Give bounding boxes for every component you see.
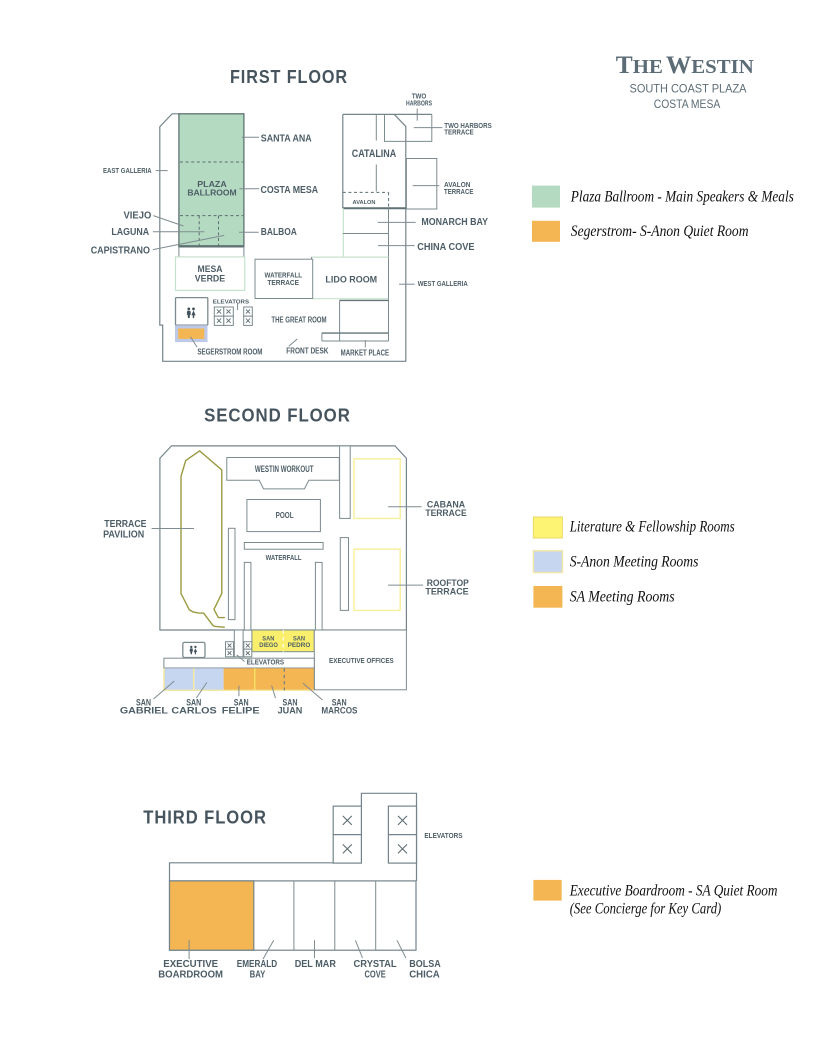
- svg-text:SEGERSTROM ROOM: SEGERSTROM ROOM: [197, 347, 262, 357]
- svg-text:BALBOA: BALBOA: [261, 227, 297, 238]
- svg-text:GABRIEL: GABRIEL: [120, 706, 168, 716]
- svg-text:COSTA MESA: COSTA MESA: [261, 185, 319, 196]
- svg-text:BAY: BAY: [250, 969, 266, 980]
- svg-text:FELIPE: FELIPE: [222, 706, 260, 716]
- svg-text:EMERALD: EMERALD: [237, 959, 277, 970]
- svg-text:ELEVATORS: ELEVATORS: [213, 300, 250, 306]
- svg-text:(See Concierge for Key Card): (See Concierge for Key Card): [570, 901, 722, 918]
- svg-text:Literature & Fellowship Rooms: Literature & Fellowship Rooms: [569, 519, 735, 536]
- svg-text:LIDO ROOM: LIDO ROOM: [325, 275, 377, 285]
- svg-text:LAGUNA: LAGUNA: [111, 227, 149, 238]
- svg-text:WATERFALL: WATERFALL: [265, 273, 303, 280]
- svg-text:CAPISTRANO: CAPISTRANO: [91, 246, 150, 257]
- svg-text:PAVILION: PAVILION: [103, 530, 144, 541]
- svg-text:SANTA ANA: SANTA ANA: [261, 133, 312, 144]
- svg-text:EXECUTIVE OFFICES: EXECUTIVE OFFICES: [329, 656, 394, 665]
- svg-text:THEWESTIN: THEWESTIN: [616, 52, 754, 79]
- svg-text:DIEGO: DIEGO: [259, 642, 278, 649]
- svg-text:CARLOS: CARLOS: [171, 706, 216, 716]
- svg-text:Plaza Ballroom - Main Speakers: Plaza Ballroom - Main Speakers & Meals: [570, 189, 794, 206]
- svg-text:POOL: POOL: [276, 511, 294, 520]
- svg-text:CHINA COVE: CHINA COVE: [417, 242, 475, 253]
- svg-text:HARBORS: HARBORS: [406, 99, 432, 107]
- svg-text:BOARDROOM: BOARDROOM: [158, 969, 223, 980]
- svg-text:BALLROOM: BALLROOM: [187, 189, 236, 198]
- svg-text:TERRACE: TERRACE: [425, 586, 469, 597]
- svg-text:THE GREAT ROOM: THE GREAT ROOM: [271, 314, 326, 324]
- svg-text:CHICA: CHICA: [409, 969, 440, 980]
- svg-text:MARKET PLACE: MARKET PLACE: [341, 348, 390, 358]
- svg-text:ELEVATORS: ELEVATORS: [247, 659, 285, 666]
- svg-text:CRYSTAL: CRYSTAL: [354, 959, 397, 970]
- svg-text:BOLSA: BOLSA: [409, 959, 440, 970]
- svg-text:WEST GALLERIA: WEST GALLERIA: [418, 281, 468, 288]
- svg-text:SOUTH COAST PLAZA: SOUTH COAST PLAZA: [630, 82, 747, 96]
- svg-text:TERRACE: TERRACE: [267, 280, 299, 287]
- svg-text:THIRD FLOOR: THIRD FLOOR: [143, 808, 267, 828]
- svg-text:EXECUTIVE: EXECUTIVE: [163, 959, 218, 970]
- svg-text:FRONT DESK: FRONT DESK: [286, 346, 329, 356]
- svg-text:AVALON: AVALON: [353, 200, 376, 206]
- svg-text:COSTA MESA: COSTA MESA: [654, 97, 721, 111]
- svg-text:EAST GALLERIA: EAST GALLERIA: [103, 168, 152, 175]
- svg-text:Segerstrom- S-Anon Quiet Room: Segerstrom- S-Anon Quiet Room: [571, 223, 749, 240]
- svg-text:WESTIN WORKOUT: WESTIN WORKOUT: [255, 464, 314, 474]
- svg-text:ELEVATORS: ELEVATORS: [424, 833, 462, 840]
- svg-text:VERDE: VERDE: [195, 273, 226, 284]
- svg-text:SA Meeting Rooms: SA Meeting Rooms: [570, 589, 675, 606]
- svg-text:MARCOS: MARCOS: [321, 706, 357, 716]
- svg-text:DEL MAR: DEL MAR: [295, 959, 336, 970]
- svg-text:MONARCH BAY: MONARCH BAY: [421, 217, 488, 228]
- svg-text:Executive Boardroom - SA Quiet: Executive Boardroom - SA Quiet Room: [569, 883, 778, 900]
- svg-text:SECOND FLOOR: SECOND FLOOR: [204, 406, 351, 426]
- svg-text:TERRACE: TERRACE: [104, 519, 146, 530]
- svg-text:WATERFALL: WATERFALL: [266, 553, 302, 562]
- svg-text:TERRACE: TERRACE: [425, 508, 467, 519]
- svg-text:S-Anon Meeting Rooms: S-Anon Meeting Rooms: [570, 554, 699, 571]
- svg-text:VIEJO: VIEJO: [124, 210, 152, 221]
- svg-text:CATALINA: CATALINA: [352, 148, 396, 160]
- svg-text:JUAN: JUAN: [278, 706, 303, 716]
- svg-text:PEDRO: PEDRO: [288, 642, 311, 649]
- svg-text:TERRACE: TERRACE: [444, 129, 474, 137]
- svg-text:PLAZA: PLAZA: [197, 180, 226, 189]
- svg-text:COVE: COVE: [365, 969, 387, 980]
- svg-text:TERRACE: TERRACE: [444, 188, 474, 196]
- svg-text:FIRST FLOOR: FIRST FLOOR: [230, 67, 348, 87]
